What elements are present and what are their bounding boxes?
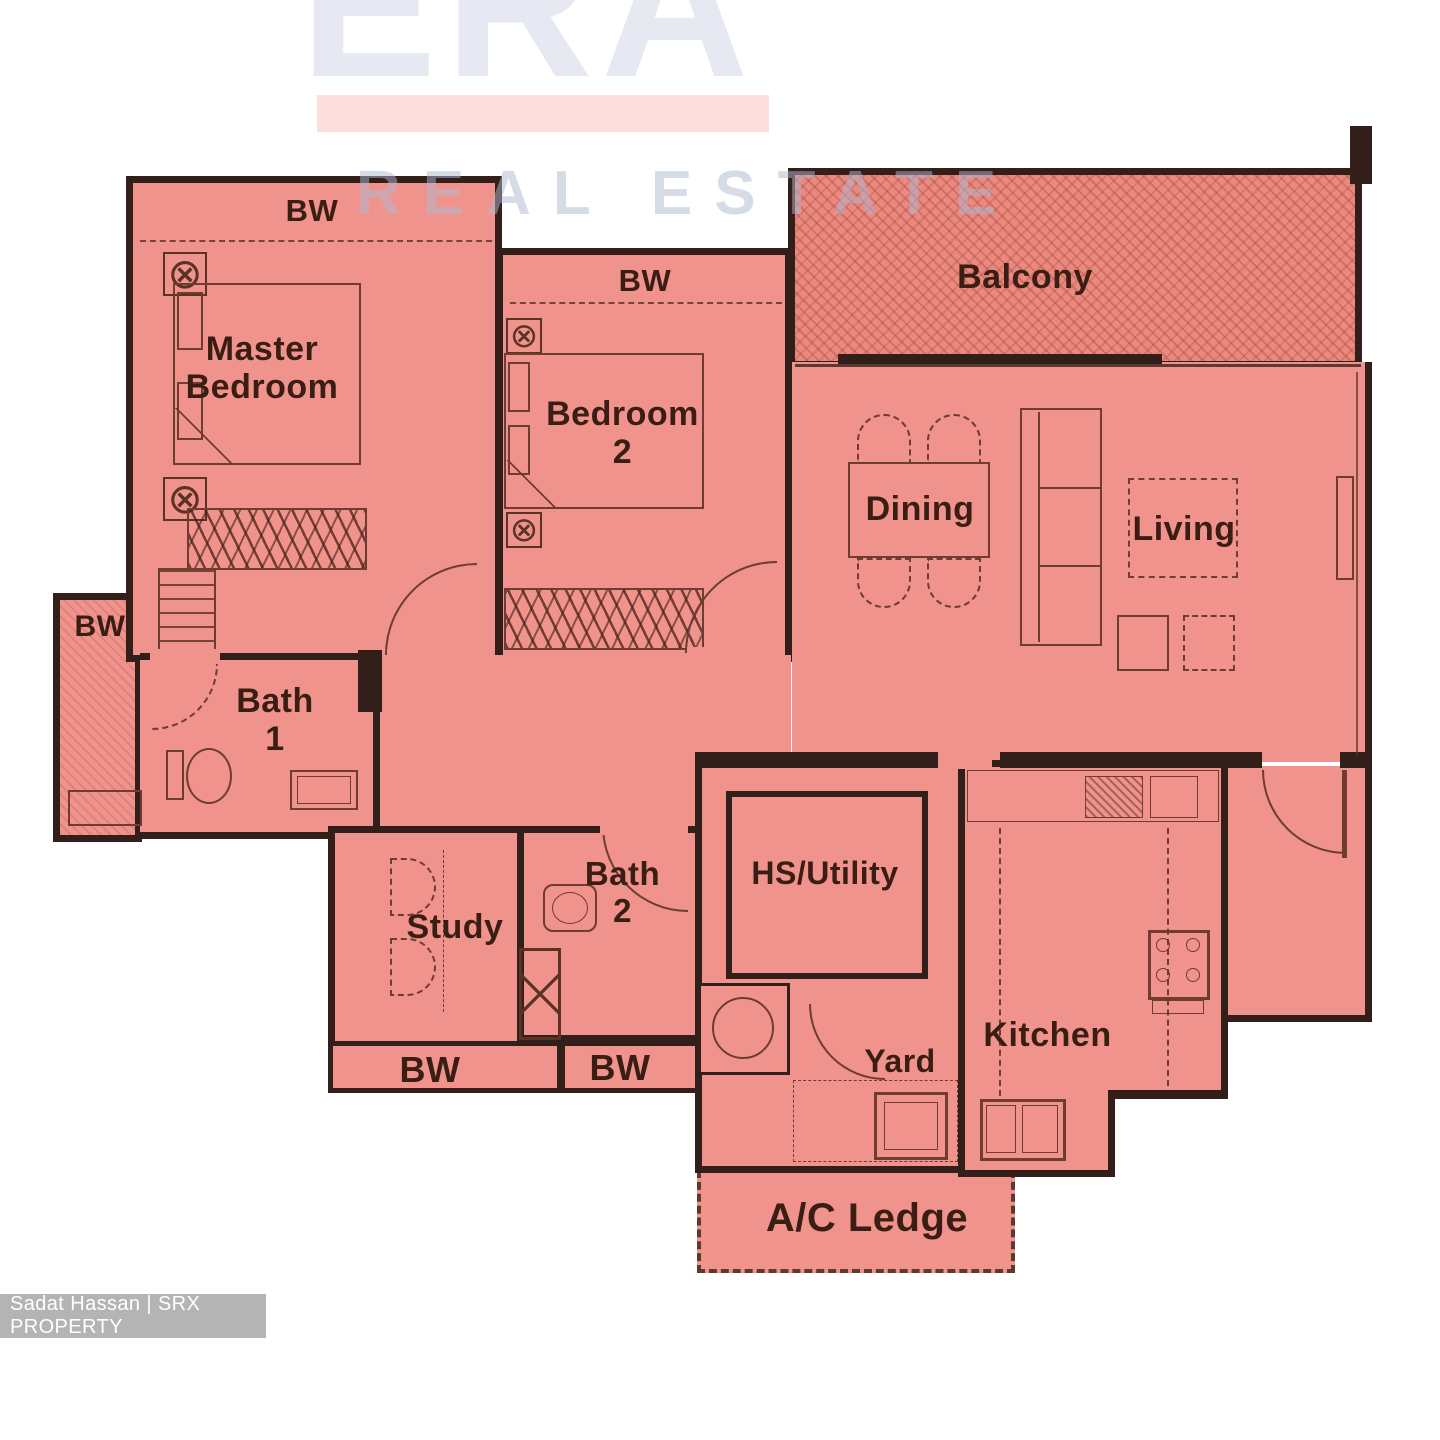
label-bath2-line2: 2	[575, 893, 670, 930]
label-bedroom2-line1: Bedroom	[545, 395, 700, 433]
planter-basin	[68, 790, 142, 826]
label-ac-ledge: A/C Ledge	[762, 1196, 972, 1241]
label-bath1-line1: Bath	[205, 682, 345, 720]
label-yard: Yard	[850, 1044, 950, 1080]
kitchen-counter-box	[1150, 776, 1198, 818]
label-bath2: Bath 2	[575, 856, 670, 930]
bedroom2-door-opening	[687, 647, 775, 662]
living-side-table	[1183, 615, 1235, 671]
bath1-sink-basin	[297, 776, 351, 804]
stove-burner	[1186, 938, 1200, 952]
vent-icon: ⊗	[506, 512, 542, 548]
label-kitchen: Kitchen	[980, 1016, 1115, 1054]
kitchen-sink-bowl	[1022, 1105, 1058, 1153]
living-side-table	[1117, 615, 1169, 671]
dining-chair	[927, 414, 981, 464]
label-master-bedroom: Master Bedroom	[172, 330, 352, 406]
master-bed-fold	[175, 408, 233, 464]
era-logo-letters: ERA	[300, 0, 757, 108]
foyer-door-leaf	[1342, 770, 1347, 858]
washer-drum	[712, 997, 774, 1059]
label-living: Living	[1124, 510, 1244, 548]
master-wardrobe	[187, 508, 367, 570]
master-shelves	[158, 568, 216, 652]
kitchen-counter-dashline-left	[999, 828, 1001, 1096]
yard-fence-dashline	[793, 1080, 958, 1162]
sofa-cushion-line	[1040, 565, 1100, 567]
living-window-line	[1356, 372, 1358, 756]
stove-burner	[1186, 968, 1200, 982]
label-bw-master: BW	[267, 194, 357, 229]
sofa	[1020, 408, 1102, 646]
kitchen-sink-bowl	[986, 1105, 1016, 1153]
stove-burner	[1156, 938, 1170, 952]
label-dining: Dining	[850, 490, 990, 528]
label-bedroom2-line2: 2	[545, 433, 700, 471]
bath1-door-opening	[150, 649, 220, 663]
balcony-pillar	[1350, 126, 1372, 184]
balcony-slider-line	[795, 364, 1361, 367]
label-bath2-line1: Bath	[575, 856, 670, 893]
master-door-opening	[387, 649, 475, 664]
bedroom2-bed-pillow	[508, 362, 530, 412]
label-bath1: Bath 1	[205, 682, 345, 758]
sofa-cushion-line	[1040, 487, 1100, 489]
label-bw-planter: BW	[60, 610, 140, 644]
credit-bar: Sadat Hassan | SRX PROPERTY	[0, 1294, 266, 1338]
label-bw-bedroom2: BW	[600, 264, 690, 299]
bath2-door-opening	[600, 822, 688, 835]
living-bottom-wall-right	[1000, 752, 1262, 768]
label-hs-utility: HS/Utility	[730, 856, 920, 892]
kitchen-counter-hatch	[1085, 776, 1143, 818]
floor-plan-image: ERA ⊗ ⊗ ⊗	[0, 0, 1440, 1440]
era-logo-red-bar	[317, 95, 769, 132]
toilet-tank	[166, 750, 184, 800]
label-bedroom2: Bedroom 2	[545, 395, 700, 471]
label-bw-strip-bath2: BW	[575, 1048, 665, 1088]
kitchen-door-opening	[938, 752, 992, 769]
hs-door-opening	[817, 999, 883, 1012]
bath1-pillar	[358, 650, 382, 712]
label-bw-strip-study: BW	[385, 1050, 475, 1090]
sofa-backrest-line	[1038, 412, 1040, 642]
bedroom2-wardrobe	[504, 588, 704, 650]
credit-text: Sadat Hassan | SRX PROPERTY	[0, 1293, 266, 1339]
living-bottom-wall-left	[695, 752, 967, 768]
master-bw-dashline	[140, 240, 492, 242]
label-bath1-line2: 1	[205, 720, 345, 758]
dining-chair	[857, 414, 911, 464]
vent-icon: ⊗	[506, 318, 542, 354]
tv-console	[1336, 476, 1354, 580]
label-balcony: Balcony	[925, 258, 1125, 296]
stove-burner	[1156, 968, 1170, 982]
era-tagline-watermark: REAL ESTATE	[356, 158, 1018, 229]
stove-knob-panel	[1152, 1000, 1204, 1014]
kitchen-step-wall	[1108, 1090, 1228, 1099]
balcony-slider	[838, 354, 1162, 364]
label-study: Study	[395, 908, 515, 946]
bedroom2-bw-dashline	[510, 302, 782, 304]
vent-shaft	[519, 948, 561, 1040]
